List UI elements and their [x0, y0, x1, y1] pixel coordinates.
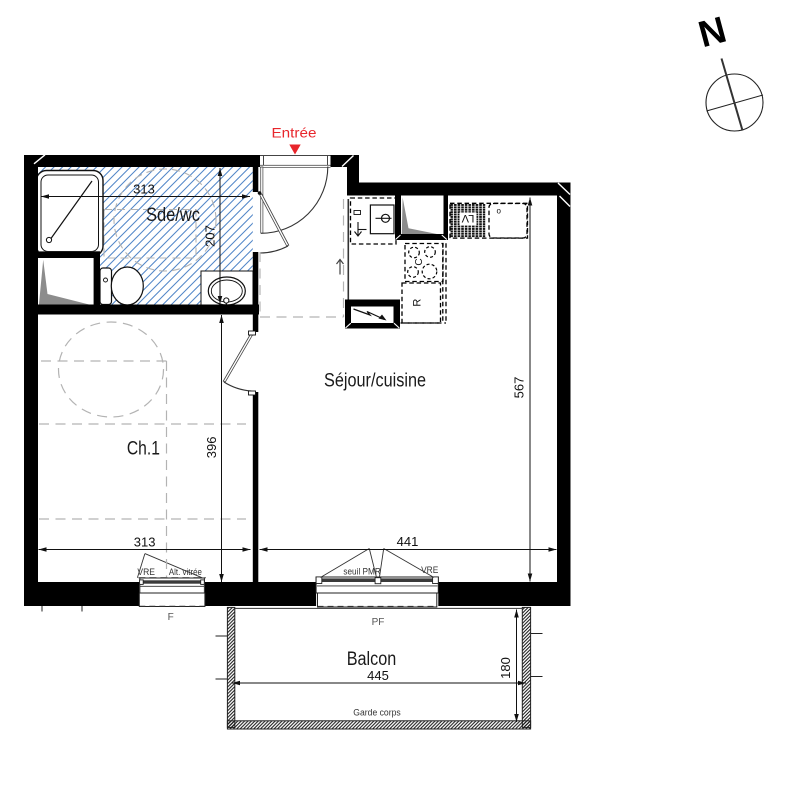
svg-text:seuil PMR: seuil PMR [343, 567, 381, 577]
svg-text:Garde corps: Garde corps [353, 708, 401, 719]
svg-text:445: 445 [367, 668, 389, 683]
svg-text:o: o [496, 207, 501, 216]
svg-text:C: C [414, 258, 425, 265]
svg-text:Alt. vitrée: Alt. vitrée [169, 567, 202, 577]
svg-text:VRE: VRE [137, 567, 155, 577]
svg-text:Séjour/cuisine: Séjour/cuisine [324, 371, 426, 392]
svg-text:F: F [168, 612, 174, 623]
svg-text:R: R [412, 299, 424, 307]
svg-text:313: 313 [134, 535, 156, 550]
svg-text:207: 207 [203, 225, 218, 247]
svg-text:Balcon: Balcon [347, 649, 397, 670]
svg-text:Ch.1: Ch.1 [127, 439, 160, 460]
svg-text:441: 441 [397, 534, 419, 549]
svg-text:LV: LV [461, 212, 474, 224]
svg-text:180: 180 [498, 657, 513, 679]
svg-text:313: 313 [133, 182, 155, 197]
svg-text:VRE: VRE [421, 565, 438, 575]
svg-text:PF: PF [372, 617, 385, 628]
svg-text:Entrée: Entrée [272, 125, 317, 141]
svg-text:Sde/wc: Sde/wc [146, 205, 200, 226]
svg-text:567: 567 [512, 377, 527, 399]
svg-text:396: 396 [204, 437, 219, 459]
